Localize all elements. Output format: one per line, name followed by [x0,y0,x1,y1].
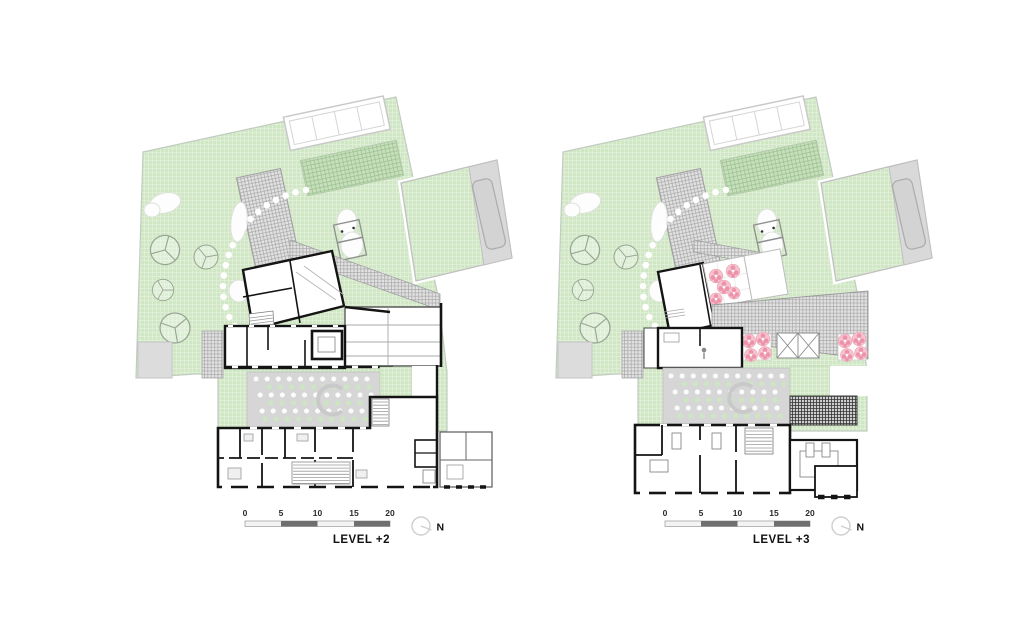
blossom-cluster [742,332,771,361]
scale-bar-level-2: 0 5 10 15 20 LEVEL +2 N [243,508,444,546]
courtyard-green-patch [380,367,412,397]
north-label: N [857,522,865,534]
white-terrace [744,249,788,300]
scale-tick: 20 [805,508,815,518]
north-indicator: N [832,517,864,535]
scale-tick: 15 [349,508,359,518]
middle-hall [644,328,742,368]
scale-tick: 15 [769,508,779,518]
floor-plan-level-3 [556,96,932,497]
north-label: N [437,522,445,534]
blossom-cluster [838,332,867,361]
east-wing [345,303,441,367]
stair-main [292,462,350,484]
courtyard-green-patch [790,366,830,396]
plans-canvas: 0 5 10 15 20 LEVEL +2 N 0 5 10 15 20 LEV… [0,0,1024,640]
crenellated-annex [815,466,857,497]
drawing-sheet: 0 5 10 15 20 LEVEL +2 N 0 5 10 15 20 LEV… [0,0,1024,640]
east-annex [440,432,492,487]
scale-tick: 0 [243,508,248,518]
dark-roof-hatch-block [790,396,857,425]
skylight-x-panel [777,333,819,358]
scale-tick: 5 [699,508,704,518]
blossom-tree-icon [710,293,722,305]
scale-tick: 0 [663,508,668,518]
scale-tick: 5 [279,508,284,518]
south-wing [635,425,857,497]
atrium [312,331,342,359]
level-label: LEVEL +2 [333,534,390,546]
blossom-tree-icon [726,264,740,278]
scale-tick: 20 [385,508,395,518]
blossom-tree-icon [728,287,740,299]
floor-plan-level-2 [136,96,512,487]
scale-tick: 10 [313,508,323,518]
scale-bar-level-3: 0 5 10 15 20 LEVEL +3 N [663,508,864,546]
courtyard [663,366,868,425]
scale-tick: 10 [733,508,743,518]
level-label: LEVEL +3 [753,534,810,546]
north-indicator: N [412,517,444,535]
stair-upper [372,399,389,426]
stair-main [745,428,773,454]
blossom-terrace [703,256,752,308]
